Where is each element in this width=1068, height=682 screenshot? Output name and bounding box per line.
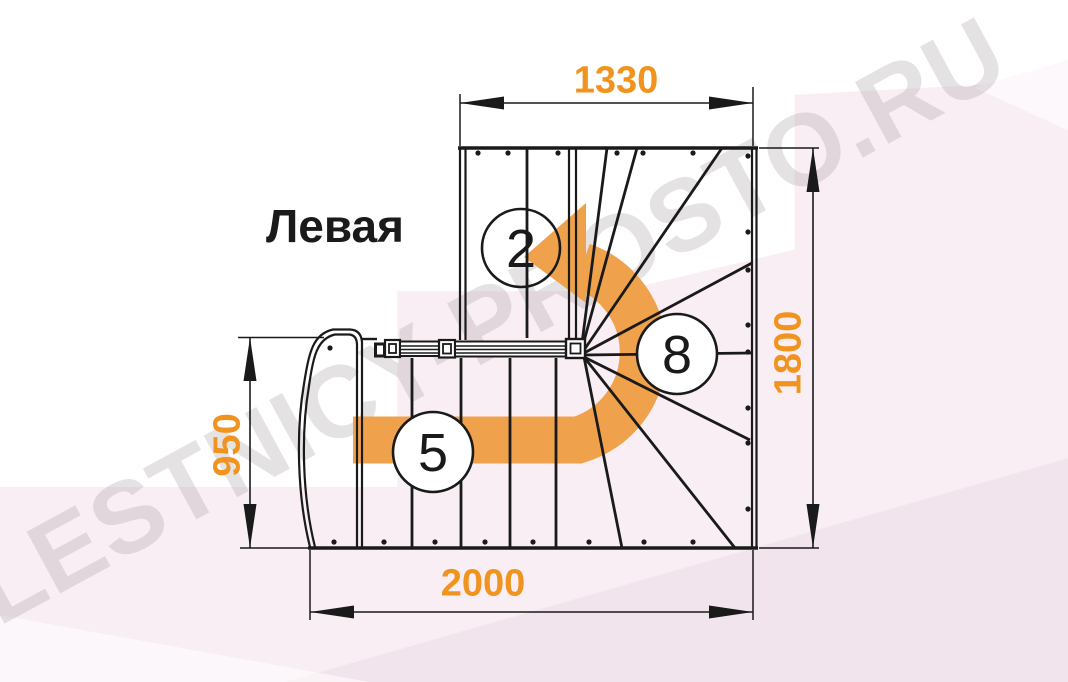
baluster-dot xyxy=(530,539,535,544)
baluster-dot xyxy=(745,153,750,158)
rail-end-fitting xyxy=(376,344,385,356)
step-count-lower-flight: 5 xyxy=(418,422,448,484)
orientation-label: Левая xyxy=(266,199,404,253)
dimension-arrowhead xyxy=(709,97,753,110)
baluster-dot xyxy=(745,506,750,511)
baluster-dot xyxy=(555,150,560,155)
baluster-dot xyxy=(381,539,386,544)
dimension-2000 xyxy=(310,550,753,620)
dimension-arrowhead xyxy=(310,606,354,619)
dimension-label-1800: 1800 xyxy=(768,311,811,396)
rail-segment xyxy=(400,342,439,357)
baluster-dot xyxy=(640,150,645,155)
baluster-dot xyxy=(690,150,695,155)
baluster-dot xyxy=(745,440,750,445)
baluster-dot xyxy=(690,539,695,544)
rail-post-core xyxy=(389,344,396,353)
baluster-dot xyxy=(641,539,646,544)
baluster-dot xyxy=(505,150,510,155)
dimension-label-950: 950 xyxy=(207,413,250,476)
baluster-dot xyxy=(614,150,619,155)
dimension-arrowhead xyxy=(807,148,820,192)
newel-pole-core xyxy=(571,344,581,354)
dimension-arrowhead xyxy=(709,606,753,619)
dimension-label-2000: 2000 xyxy=(441,563,526,606)
dimension-label-1330: 1330 xyxy=(574,60,659,103)
bent-stringer-inner-curve xyxy=(304,335,357,548)
baluster-dot xyxy=(745,229,750,234)
staircase-plan-svg xyxy=(0,0,1068,682)
dimension-arrowhead xyxy=(244,338,257,382)
baluster-dot xyxy=(745,349,750,354)
baluster-dot xyxy=(745,322,750,327)
baluster-dot xyxy=(475,150,480,155)
railing xyxy=(376,339,586,358)
step-count-winder: 8 xyxy=(662,324,692,386)
dimension-arrowhead xyxy=(807,504,820,548)
baluster-dot xyxy=(331,539,336,544)
baluster-dot xyxy=(327,345,332,350)
dimension-arrowhead xyxy=(244,504,257,548)
baluster-dot xyxy=(482,539,487,544)
staircase-plan-drawing: LESTNICY-PROSTO.RU xyxy=(0,0,1068,682)
dimension-arrowhead xyxy=(460,97,504,110)
baluster-dot xyxy=(745,267,750,272)
baluster-dot xyxy=(745,405,750,410)
step-count-upper-flight: 2 xyxy=(506,218,536,280)
baluster-dot xyxy=(432,539,437,544)
rail-post-core xyxy=(443,344,451,354)
baluster-dot xyxy=(586,539,591,544)
